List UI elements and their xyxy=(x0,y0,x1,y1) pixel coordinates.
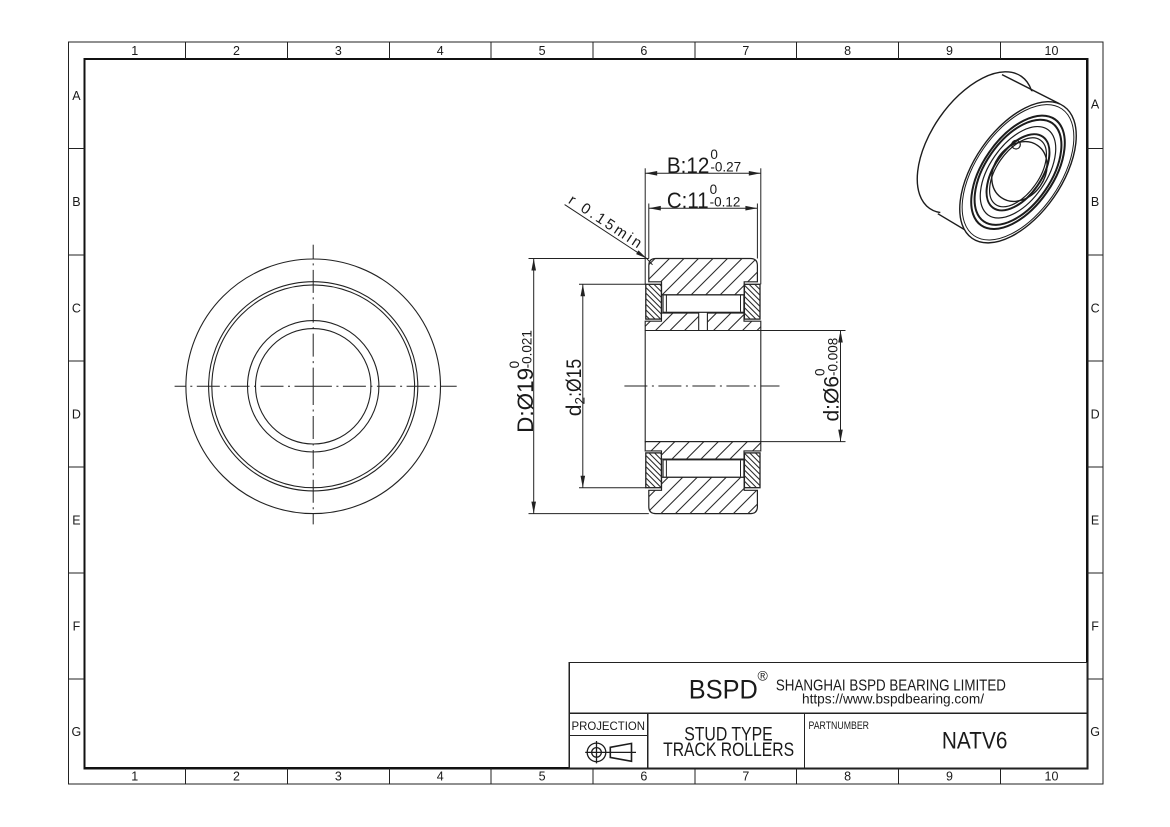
svg-text:https://www.bspdbearing.com/: https://www.bspdbearing.com/ xyxy=(802,691,984,707)
svg-text:1: 1 xyxy=(131,44,138,58)
svg-text:1: 1 xyxy=(131,770,138,784)
svg-text:2: 2 xyxy=(572,397,587,405)
svg-text:PARTNUMBER: PARTNUMBER xyxy=(809,720,870,732)
svg-text:E: E xyxy=(72,514,80,528)
svg-text:d: d xyxy=(563,405,586,417)
svg-text:D:Ø19: D:Ø19 xyxy=(513,368,538,433)
svg-text:6: 6 xyxy=(640,770,647,784)
svg-text:-0.021: -0.021 xyxy=(520,330,535,368)
svg-text:7: 7 xyxy=(742,44,749,58)
svg-text:4: 4 xyxy=(437,770,444,784)
svg-text:F: F xyxy=(73,620,81,634)
svg-text:F: F xyxy=(1091,620,1099,634)
svg-text:10: 10 xyxy=(1045,44,1059,58)
svg-text:®: ® xyxy=(758,668,769,684)
svg-text:C: C xyxy=(72,301,81,315)
svg-text:B: B xyxy=(1091,195,1099,209)
svg-text:6: 6 xyxy=(640,44,647,58)
svg-text:D: D xyxy=(1091,407,1100,421)
svg-text:BSPD: BSPD xyxy=(689,675,758,705)
svg-text:8: 8 xyxy=(844,770,851,784)
svg-text:2: 2 xyxy=(233,770,240,784)
svg-text:G: G xyxy=(72,725,82,739)
svg-text:8: 8 xyxy=(844,44,851,58)
svg-text:B: B xyxy=(72,195,80,209)
svg-text:3: 3 xyxy=(335,770,342,784)
svg-text:C:11: C:11 xyxy=(667,188,709,213)
svg-text:-0.27: -0.27 xyxy=(710,160,741,175)
svg-text:10: 10 xyxy=(1045,770,1059,784)
svg-text:NATV6: NATV6 xyxy=(942,728,1008,755)
svg-text:5: 5 xyxy=(539,44,546,58)
svg-text:A: A xyxy=(1091,97,1100,111)
svg-text:3: 3 xyxy=(335,44,342,58)
svg-text:4: 4 xyxy=(437,44,444,58)
svg-text:d:Ø6: d:Ø6 xyxy=(821,376,844,422)
svg-text:5: 5 xyxy=(539,770,546,784)
svg-text:2: 2 xyxy=(233,44,240,58)
svg-text:7: 7 xyxy=(742,770,749,784)
svg-text:-0.008: -0.008 xyxy=(826,338,841,376)
svg-text:9: 9 xyxy=(946,770,953,784)
svg-text:TRACK ROLLERS: TRACK ROLLERS xyxy=(663,740,794,761)
svg-text:D: D xyxy=(72,407,81,421)
svg-text:B:12: B:12 xyxy=(667,153,710,178)
svg-text:G: G xyxy=(1090,725,1100,739)
svg-text:C: C xyxy=(1091,301,1100,315)
svg-text:9: 9 xyxy=(946,44,953,58)
svg-text:-0.12: -0.12 xyxy=(710,195,741,210)
svg-text:PROJECTION: PROJECTION xyxy=(572,720,646,733)
svg-text:A: A xyxy=(72,89,81,103)
svg-text:E: E xyxy=(1091,514,1099,528)
svg-text::Ø15: :Ø15 xyxy=(563,359,586,397)
